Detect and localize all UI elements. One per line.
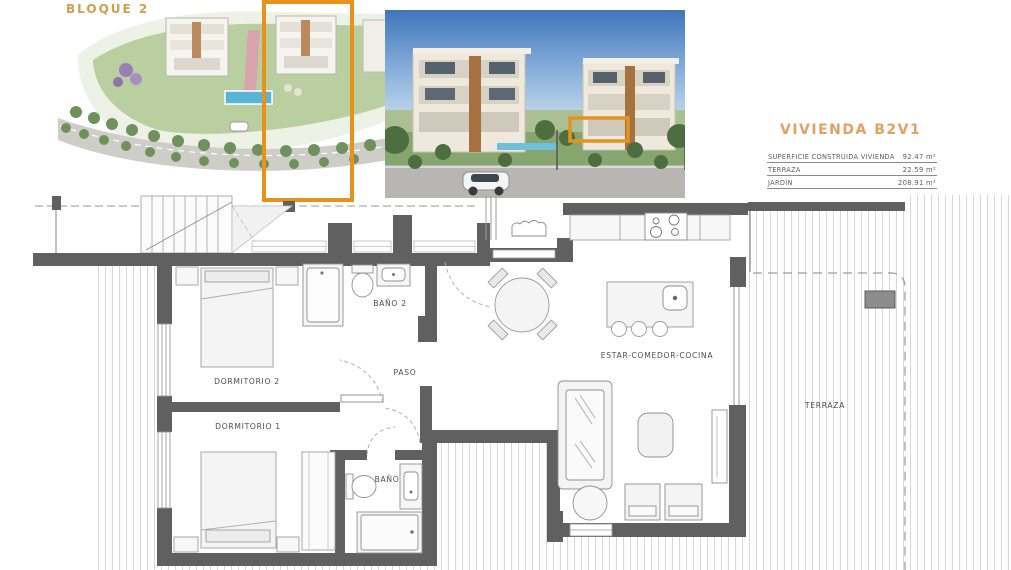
label-estar: ESTAR-COMEDOR-COCINA bbox=[601, 351, 714, 360]
label-terraza: TERRAZA bbox=[804, 401, 845, 410]
entry-threshold bbox=[493, 250, 555, 258]
window-left-dorm1 bbox=[158, 432, 170, 508]
wall-pillar bbox=[393, 215, 412, 253]
window-left-dorm2 bbox=[158, 324, 170, 396]
wall-dorm-separator bbox=[160, 402, 340, 412]
wall-paso bbox=[420, 386, 432, 443]
wall-pillar bbox=[418, 316, 437, 342]
wall-left bbox=[157, 266, 172, 324]
window-living-right bbox=[734, 287, 739, 405]
garden-post bbox=[52, 196, 61, 210]
stool bbox=[632, 322, 647, 337]
dining-table bbox=[495, 278, 549, 332]
bano2-fixtures bbox=[303, 264, 410, 326]
wall-left-pillar bbox=[157, 396, 172, 432]
stool bbox=[612, 322, 627, 337]
wall-bano-top bbox=[395, 450, 422, 460]
wall-bano-left bbox=[335, 450, 345, 553]
wall-bano-right bbox=[422, 443, 437, 566]
door-swing-dorm1 bbox=[385, 408, 420, 443]
toilet-bano2 bbox=[352, 273, 373, 297]
wall-top bbox=[33, 253, 490, 266]
wall-terraza-top bbox=[748, 202, 905, 211]
wall-living-right-pillar bbox=[730, 257, 746, 287]
terraza-pillar bbox=[865, 291, 895, 308]
wardrobe bbox=[302, 452, 335, 550]
door-swing-bano bbox=[367, 427, 395, 455]
stool bbox=[653, 322, 668, 337]
label-bano2: BAÑO 2 bbox=[373, 299, 407, 308]
nightstand bbox=[174, 537, 198, 552]
side-table bbox=[573, 486, 607, 520]
wall-corridor-south bbox=[432, 430, 560, 443]
tv-unit bbox=[712, 410, 727, 483]
label-dormitorio1: DORMITORIO 1 bbox=[215, 422, 281, 431]
living-furniture bbox=[558, 381, 727, 520]
wall-living-right bbox=[729, 405, 746, 537]
nightstand bbox=[277, 537, 299, 552]
dorm1-furniture bbox=[174, 452, 335, 552]
kitchen bbox=[570, 213, 730, 337]
brochure-page: BLOQUE 2 bbox=[0, 0, 1011, 570]
nightstand bbox=[176, 267, 198, 285]
coffee-table bbox=[638, 413, 673, 457]
toilet-bano bbox=[352, 476, 376, 498]
label-paso: PASO bbox=[394, 368, 417, 377]
toilet-tank bbox=[352, 265, 373, 273]
stove bbox=[645, 213, 687, 240]
nightstand bbox=[276, 267, 298, 285]
wall-pillar bbox=[328, 223, 352, 253]
shower-tray bbox=[307, 268, 339, 322]
bed-dorm2 bbox=[201, 268, 273, 367]
pillow bbox=[206, 530, 270, 542]
floor-plan: DORMITORIO 2 DORMITORIO 1 BAÑO 2 BAÑO PA… bbox=[0, 0, 1011, 570]
wall-porch-right bbox=[557, 238, 573, 262]
dining-set bbox=[488, 268, 557, 340]
label-dormitorio2: DORMITORIO 2 bbox=[214, 377, 280, 386]
porch-planter bbox=[512, 221, 546, 237]
door-leaf-dorm2 bbox=[341, 395, 383, 402]
label-bano: BAÑO bbox=[375, 475, 400, 484]
wall-bottom-bedrooms bbox=[157, 553, 437, 566]
door-swing-entry bbox=[445, 262, 490, 307]
dorm2-furniture bbox=[176, 267, 298, 367]
top-wall-windows bbox=[252, 241, 475, 252]
pillow bbox=[205, 271, 269, 282]
